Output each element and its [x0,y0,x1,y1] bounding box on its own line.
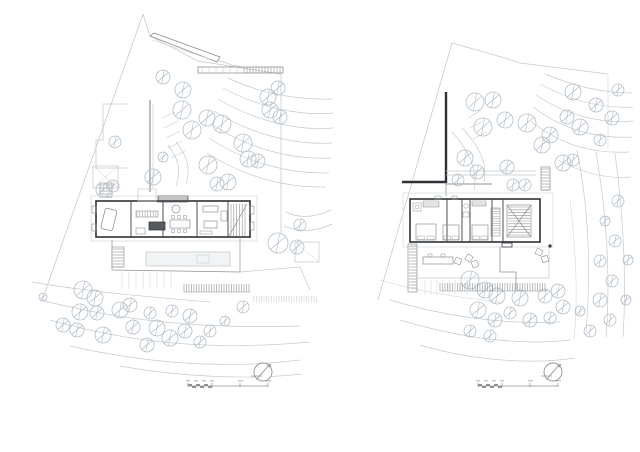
tree-symbol [575,306,585,316]
tree-symbol [220,316,230,326]
tree-symbol [199,156,217,174]
site-boundary [45,14,281,292]
tree-symbol [220,174,236,190]
tree-symbol [166,305,178,317]
contour-lines [32,78,333,377]
tree-symbol [237,301,249,313]
tree-symbol [500,160,514,174]
tree-symbol [612,195,624,207]
tree-symbol [466,93,484,111]
tree-symbol [158,152,168,162]
tree-symbol [593,293,607,307]
trees [452,84,633,342]
tree-symbol [534,137,550,153]
tree-symbol [470,165,484,179]
tree-symbol [87,290,103,306]
drawing-sheet [0,0,640,452]
terrace-and-pool [112,237,319,302]
tree-symbol [123,298,137,312]
tree-symbol [470,302,486,318]
tree-symbol [457,150,473,166]
tree-symbol [173,101,191,119]
tree-symbol [594,255,606,267]
tree-symbol [234,134,252,152]
tree-symbol [149,320,165,336]
tree-symbol [497,112,513,128]
tree-symbol [523,313,537,327]
north-arrow-left [251,363,272,381]
tree-symbol [72,304,88,320]
tree-symbol [551,284,565,298]
tree-symbol [512,290,528,306]
tree-symbol [144,307,156,319]
tree-symbol [294,219,306,231]
tree-symbol [210,177,224,191]
tree-symbol [178,324,192,338]
slope-marks [162,112,188,186]
site-plan-drawing [0,0,640,452]
furniture [413,201,531,240]
tree-symbol [589,98,603,112]
tree-symbol [183,309,197,323]
tree-symbol [555,155,571,171]
tree-symbol [109,136,121,148]
tree-symbol [565,84,581,100]
tree-symbol [70,323,84,337]
tree-symbol [39,293,47,301]
tree-symbol [464,325,476,337]
furniture [101,204,247,236]
scale-bar-left [186,380,271,388]
site-plan-left [32,14,333,377]
tree-symbol [213,115,231,133]
tree-symbol [612,84,624,96]
tree-symbol [621,295,631,305]
tree-symbol [251,154,265,168]
north-arrow-right [541,363,562,381]
tree-symbol [271,81,285,95]
terrace [408,243,552,295]
site-plan-right [378,43,633,361]
tree-symbol [485,92,501,108]
retaining-walls [402,92,550,196]
tree-symbol [484,330,496,342]
tree-symbol [504,307,516,319]
tree-symbol [609,235,621,247]
tree-symbol [556,300,570,314]
scale-bar-right [476,380,561,388]
tree-symbol [567,154,579,166]
tree-symbol [126,320,140,334]
sheet-annotations [186,363,562,388]
tree-symbol [519,179,531,191]
tree-symbol [542,127,558,143]
tree-symbol [175,82,191,98]
tree-symbol [507,179,519,191]
tree-symbol [204,325,216,337]
tree-symbol [95,327,111,343]
tree-symbol [162,330,178,346]
tree-symbol [623,255,633,265]
tree-symbol [604,314,616,326]
tree-symbol [194,336,206,348]
tree-symbol [268,233,288,253]
tree-symbol [183,121,201,139]
tree-symbol [273,110,287,124]
tree-symbol [605,111,619,125]
tree-symbol [560,110,574,124]
site-boundary [378,43,608,300]
tree-symbol [156,70,170,84]
tree-symbol [572,119,588,135]
tree-symbol [199,110,215,126]
